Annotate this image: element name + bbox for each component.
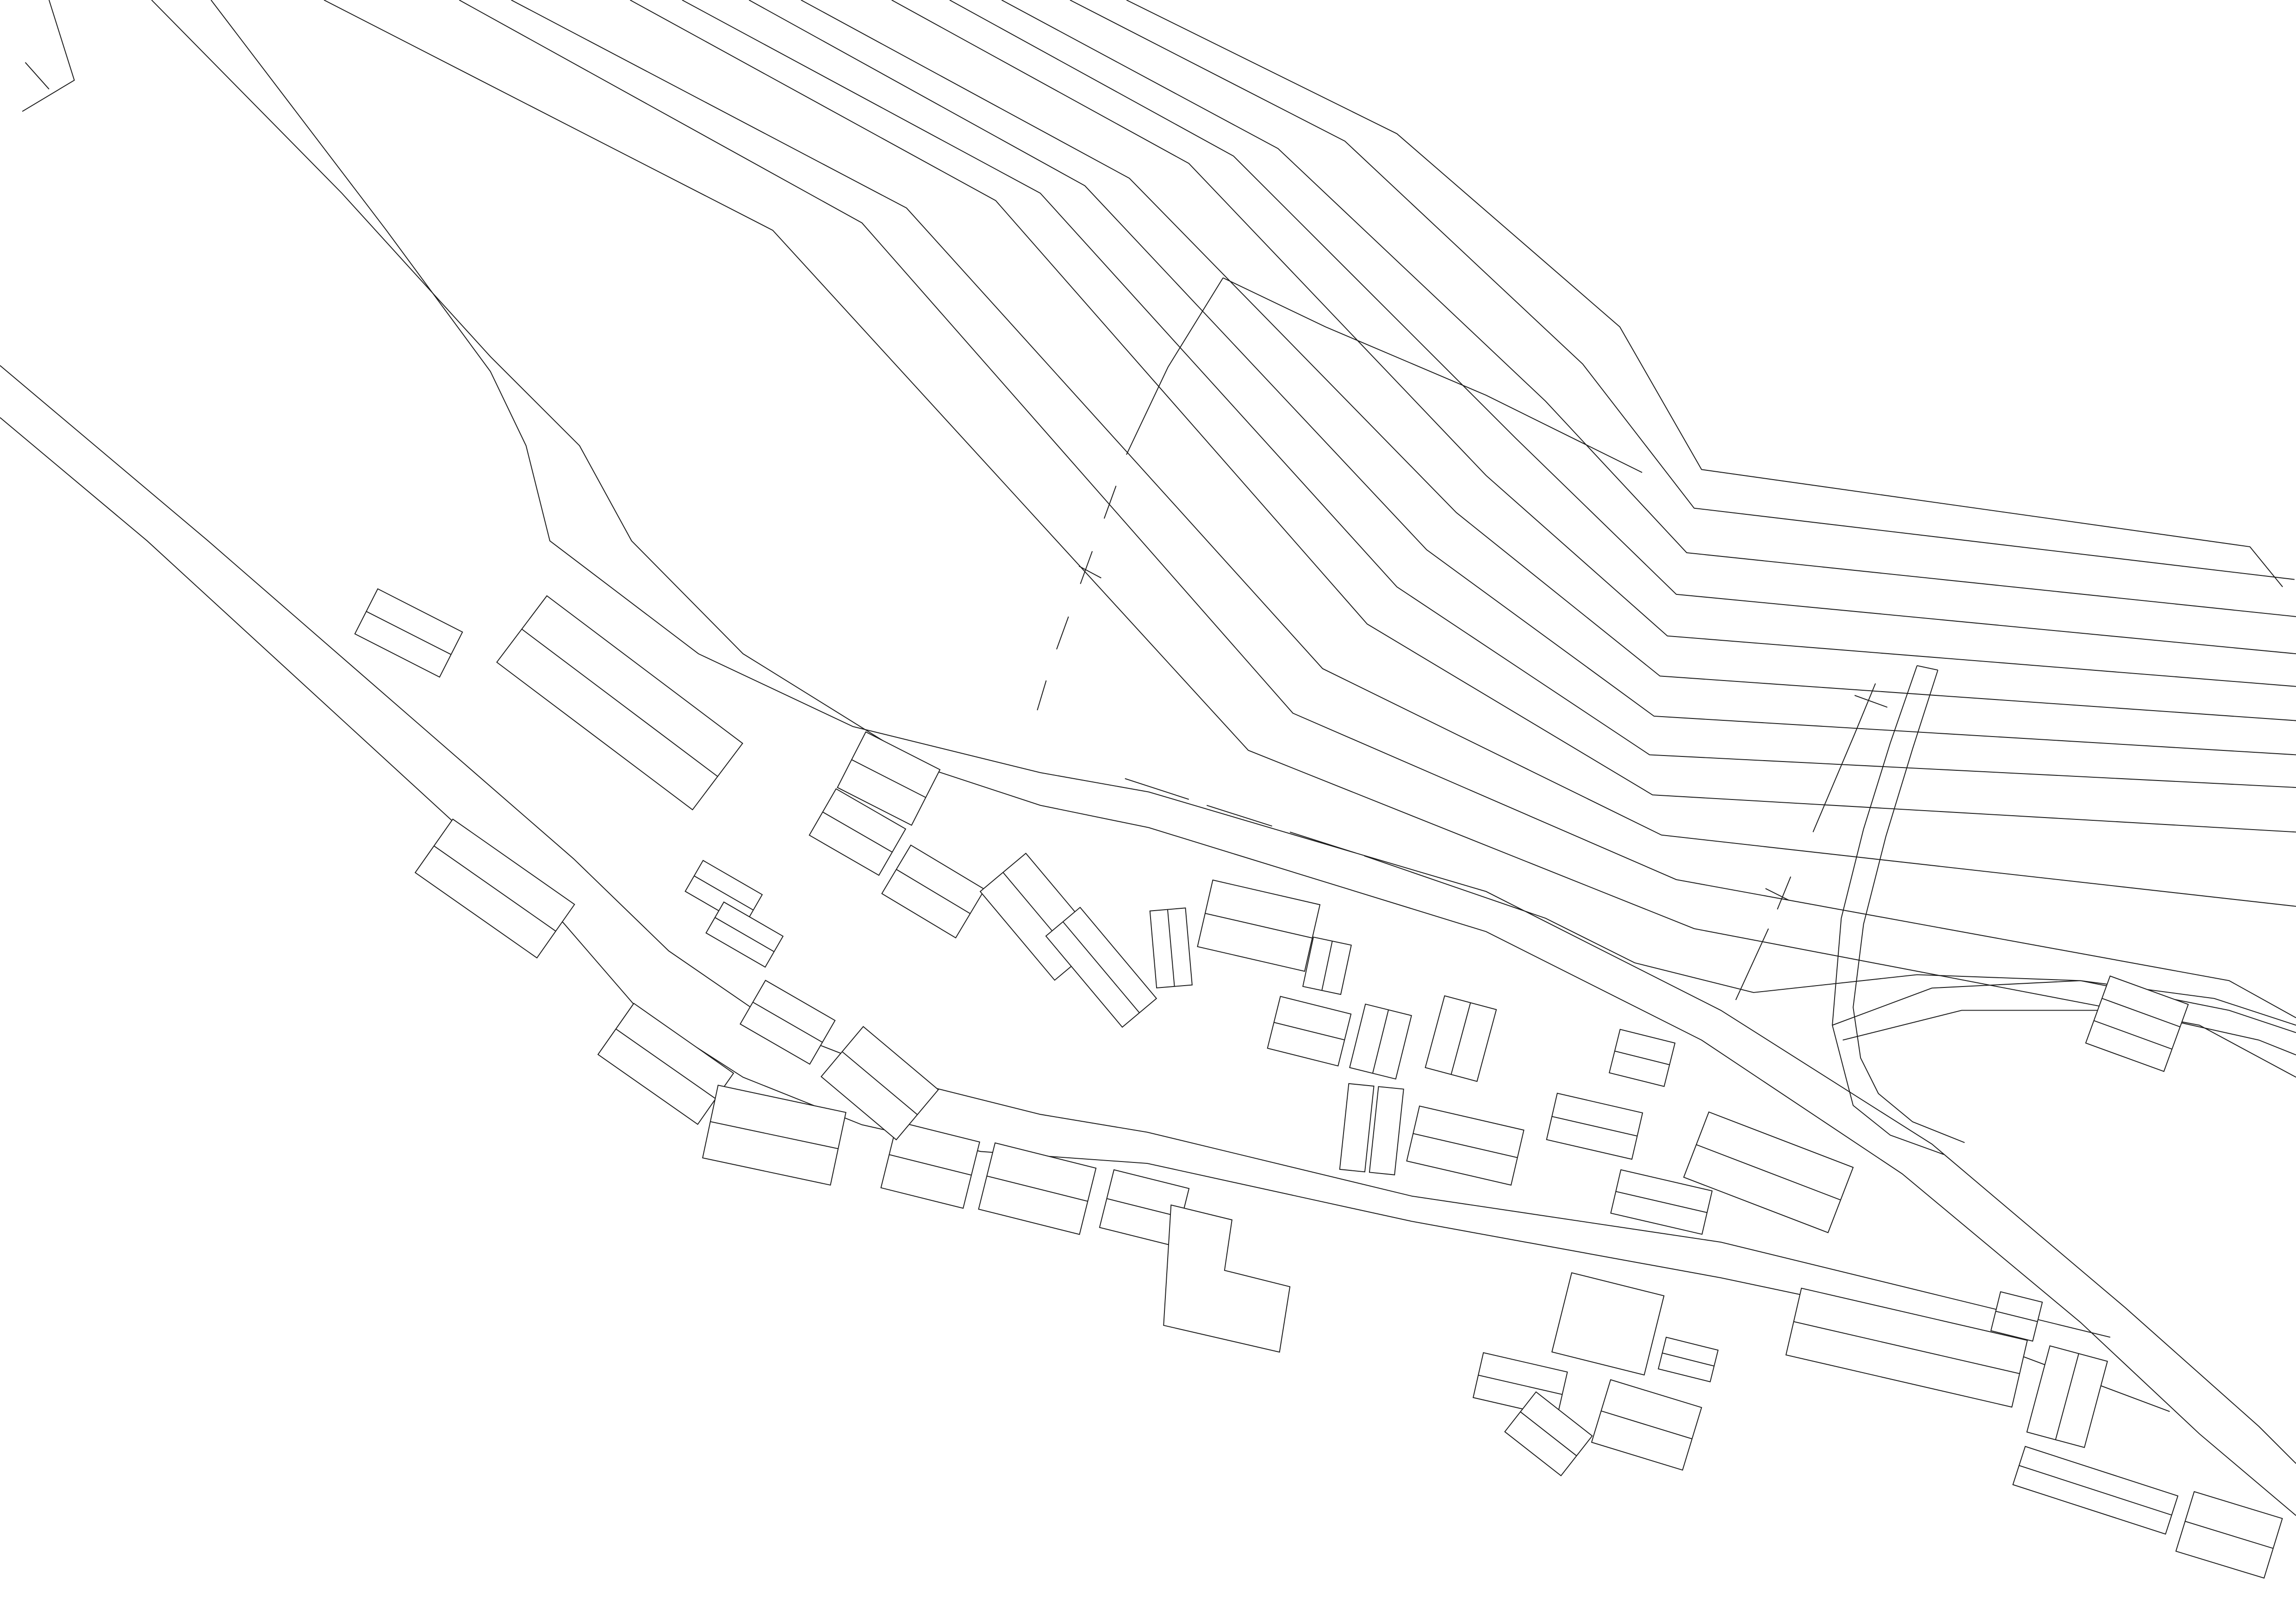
roadside-dash-1 (1207, 806, 1272, 826)
building-30-outline (1369, 1087, 1404, 1175)
terrace-line-7 (682, 0, 2296, 787)
building-28-outline (2086, 976, 2189, 1071)
corner-line-1 (25, 62, 49, 89)
track-east-curve (1853, 670, 1965, 1143)
parcel-w-dash-2 (1057, 617, 1069, 650)
tick-mark-2 (1854, 695, 1887, 707)
roadside-dash-2 (1290, 832, 1355, 853)
parcel-w-dash-3 (1037, 681, 1046, 710)
terrace-line-8 (630, 0, 2296, 832)
track-branch-0 (1832, 981, 2296, 1025)
terrace-line-10 (459, 0, 2296, 1018)
parcel-w-dash-0 (1104, 486, 1116, 519)
track-branch-1 (1843, 1010, 2296, 1055)
terrace-line-0 (1126, 0, 2283, 587)
terrace-line-4 (892, 0, 2296, 687)
terrace-line-2 (1002, 0, 2296, 617)
tick-mark-1 (1766, 888, 1789, 900)
tick-mark-0 (1079, 566, 1101, 578)
road-edges (0, 0, 2296, 1516)
map-canvas[interactable] (0, 0, 2296, 1624)
building-poly-0-outline (1164, 1205, 1290, 1352)
road-a-north (211, 0, 2296, 1463)
track-top-cap (1917, 666, 1938, 670)
map-viewport[interactable] (0, 0, 2296, 1624)
corner-structure (22, 0, 74, 112)
terrace-line-5 (801, 0, 2296, 721)
vertical-boundary-0 (1813, 683, 1875, 832)
terrace-line-1 (1070, 0, 2295, 580)
vertical-boundary-dash-0 (1777, 877, 1791, 910)
building-footprints (355, 589, 2283, 1578)
track-west-curve (1832, 666, 1944, 1155)
building-29-outline (1340, 1084, 1374, 1172)
terrace-line-9 (511, 0, 2296, 906)
curved-track (1832, 666, 2296, 1155)
parcel-ne-edge (1223, 278, 1643, 472)
terrace-line-6 (749, 0, 2296, 755)
building-35-outline (1552, 1273, 1664, 1375)
corner-line-0 (22, 0, 74, 112)
